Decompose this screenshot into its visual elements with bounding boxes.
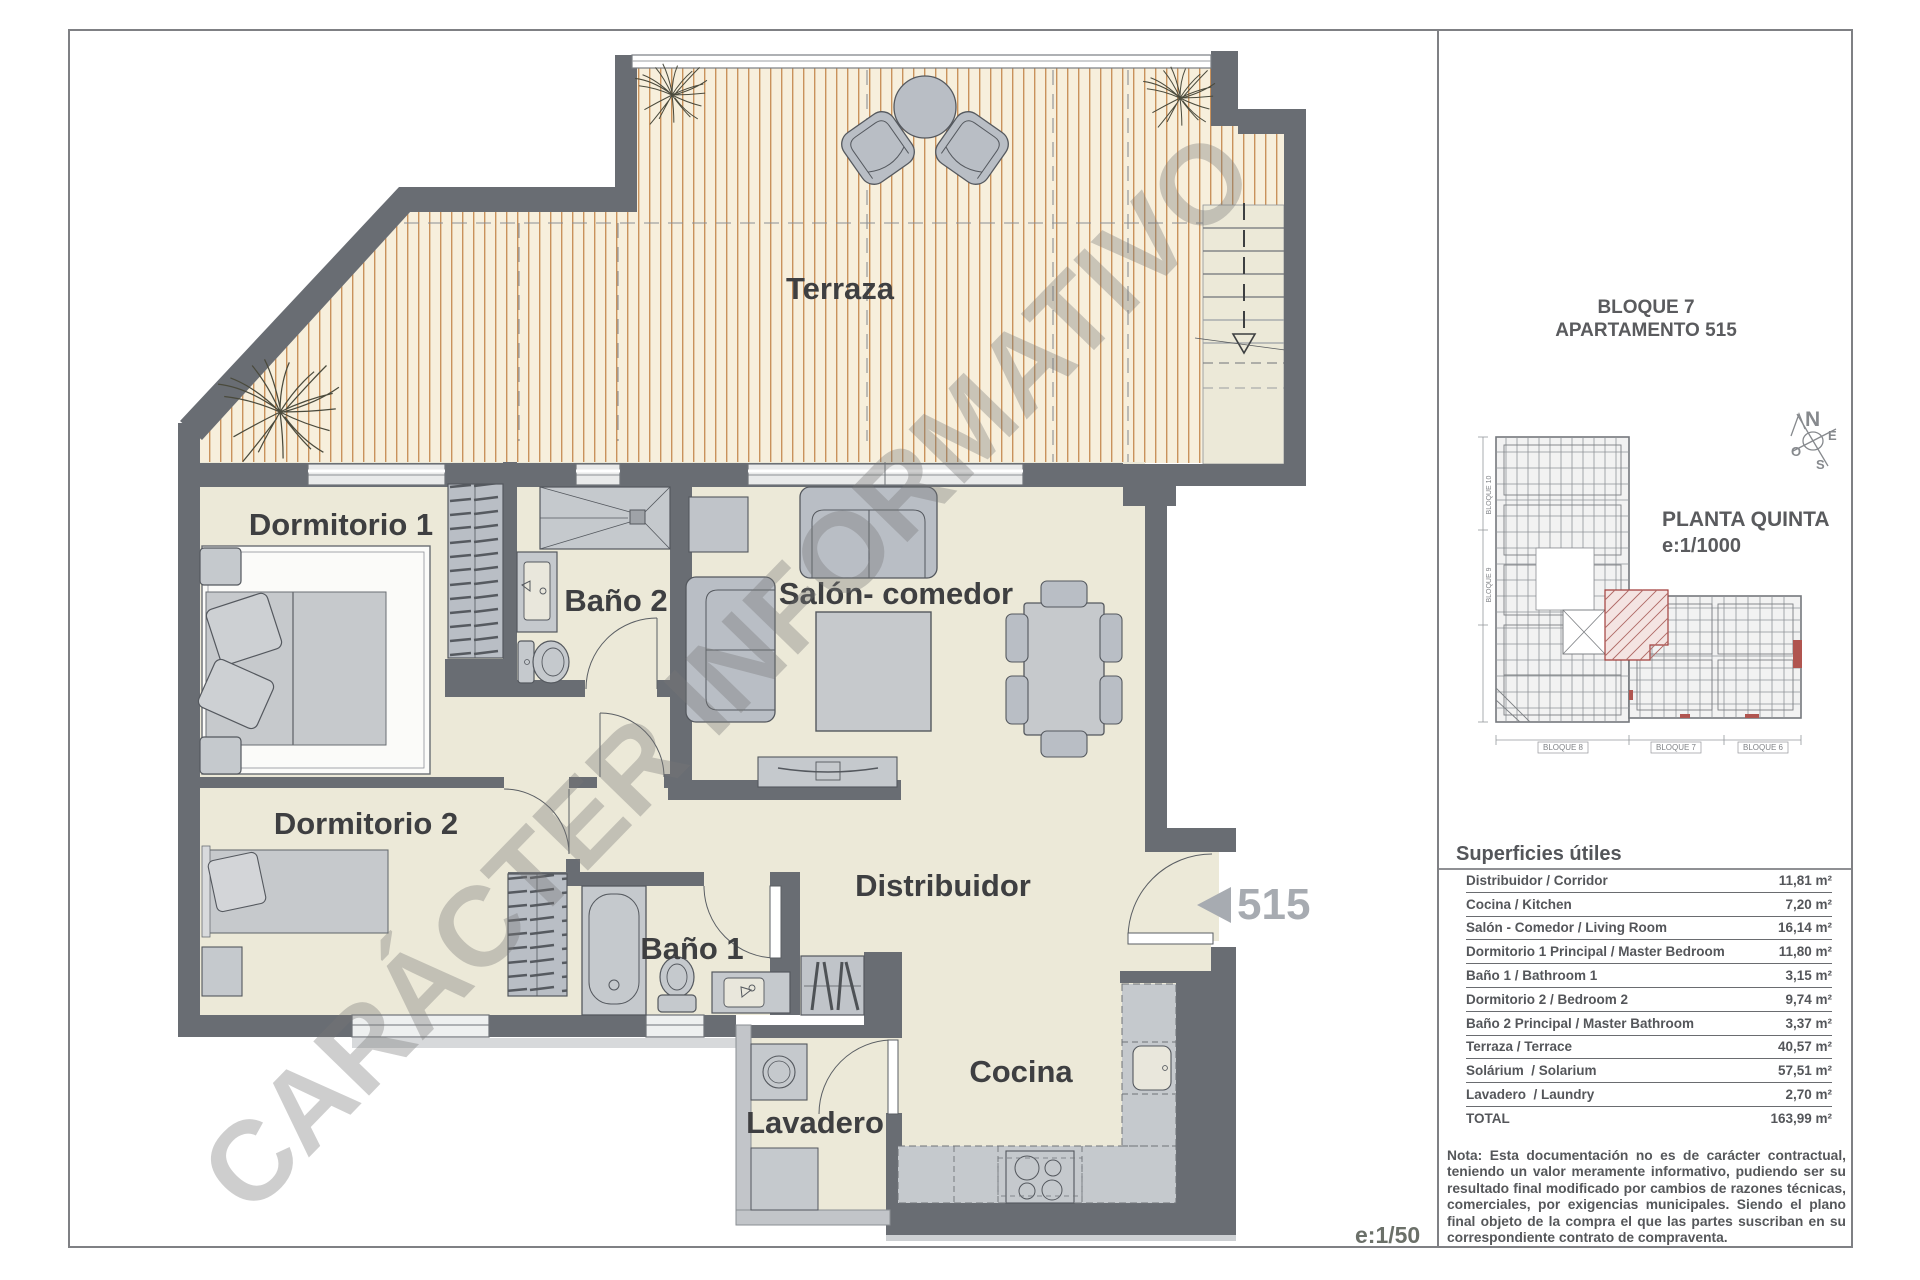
svg-text:Lavadero: Lavadero bbox=[746, 1105, 884, 1140]
svg-text:BLOQUE 9: BLOQUE 9 bbox=[1486, 567, 1493, 602]
svg-text:Baño 1: Baño 1 bbox=[640, 931, 743, 966]
svg-text:Superficies útiles: Superficies útiles bbox=[1456, 843, 1622, 865]
svg-text:Baño 2: Baño 2 bbox=[564, 583, 667, 618]
svg-text:BLOQUE 6: BLOQUE 6 bbox=[1743, 743, 1784, 752]
svg-text:Cocina: Cocina bbox=[969, 1054, 1073, 1089]
svg-text:S: S bbox=[1816, 457, 1825, 472]
svg-text:PLANTA QUINTA: PLANTA QUINTA bbox=[1662, 508, 1830, 531]
svg-text:Dormitorio 1: Dormitorio 1 bbox=[249, 507, 433, 542]
svg-text:O: O bbox=[1791, 444, 1801, 459]
svg-text:BLOQUE 7: BLOQUE 7 bbox=[1656, 743, 1697, 752]
svg-text:BLOQUE 8: BLOQUE 8 bbox=[1543, 743, 1584, 752]
svg-text:E: E bbox=[1828, 428, 1837, 443]
svg-text:515: 515 bbox=[1237, 880, 1310, 929]
svg-text:BLOQUE 7: BLOQUE 7 bbox=[1597, 297, 1694, 318]
svg-text:e:1/1000: e:1/1000 bbox=[1662, 535, 1741, 557]
svg-text:Dormitorio 2: Dormitorio 2 bbox=[274, 806, 458, 841]
svg-text:Distribuidor: Distribuidor bbox=[855, 868, 1031, 903]
svg-text:N: N bbox=[1805, 408, 1820, 431]
svg-text:APARTAMENTO 515: APARTAMENTO 515 bbox=[1555, 320, 1737, 341]
svg-text:Terraza: Terraza bbox=[786, 271, 895, 306]
svg-text:BLOQUE 10: BLOQUE 10 bbox=[1486, 475, 1493, 514]
svg-text:e:1/50: e:1/50 bbox=[1355, 1222, 1420, 1248]
